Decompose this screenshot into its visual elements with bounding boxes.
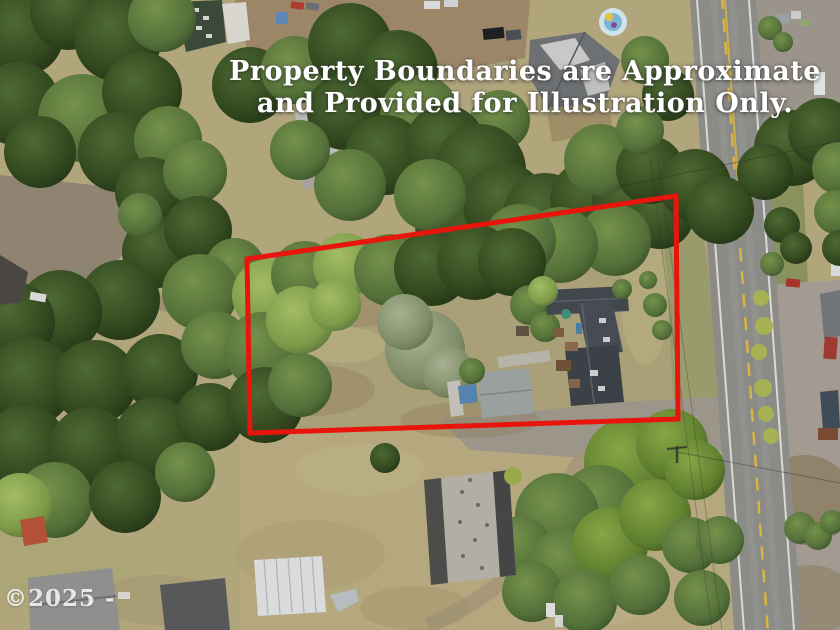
- disclaimer-text-line1: Property Boundaries are Approximate: [210, 56, 840, 87]
- white-car-bottom: [546, 603, 555, 617]
- white-car-bottom-2: [555, 615, 563, 627]
- dark-gray-car: [506, 29, 522, 41]
- pool-toy: [611, 22, 617, 28]
- garage-blue-tarp: [458, 384, 478, 404]
- disclaimer-text-line2: and Provided for Illustration Only.: [210, 88, 840, 119]
- black-car: [483, 27, 505, 40]
- corner-shrub: [504, 467, 522, 485]
- aerial-photo: Property Boundaries are Approximate and …: [0, 0, 840, 630]
- copyright-watermark: ©2025 -: [4, 585, 116, 612]
- east-neighbor-deck: [818, 428, 838, 440]
- kayak: [576, 323, 582, 334]
- garden-bed: [516, 326, 529, 336]
- red-shed: [20, 516, 48, 546]
- patio-umbrella: [561, 309, 571, 319]
- red-truck: [823, 337, 838, 360]
- round-bush: [370, 443, 400, 473]
- red-car-east: [786, 278, 801, 287]
- blue-tarp: [276, 12, 288, 24]
- dark-roof-house: [160, 578, 230, 630]
- white-car-top-2: [444, 0, 458, 7]
- white-debris: [118, 592, 130, 599]
- east-neighbor-roof-2: [820, 390, 840, 430]
- white-car-top: [424, 1, 440, 9]
- pool-float: [605, 13, 613, 21]
